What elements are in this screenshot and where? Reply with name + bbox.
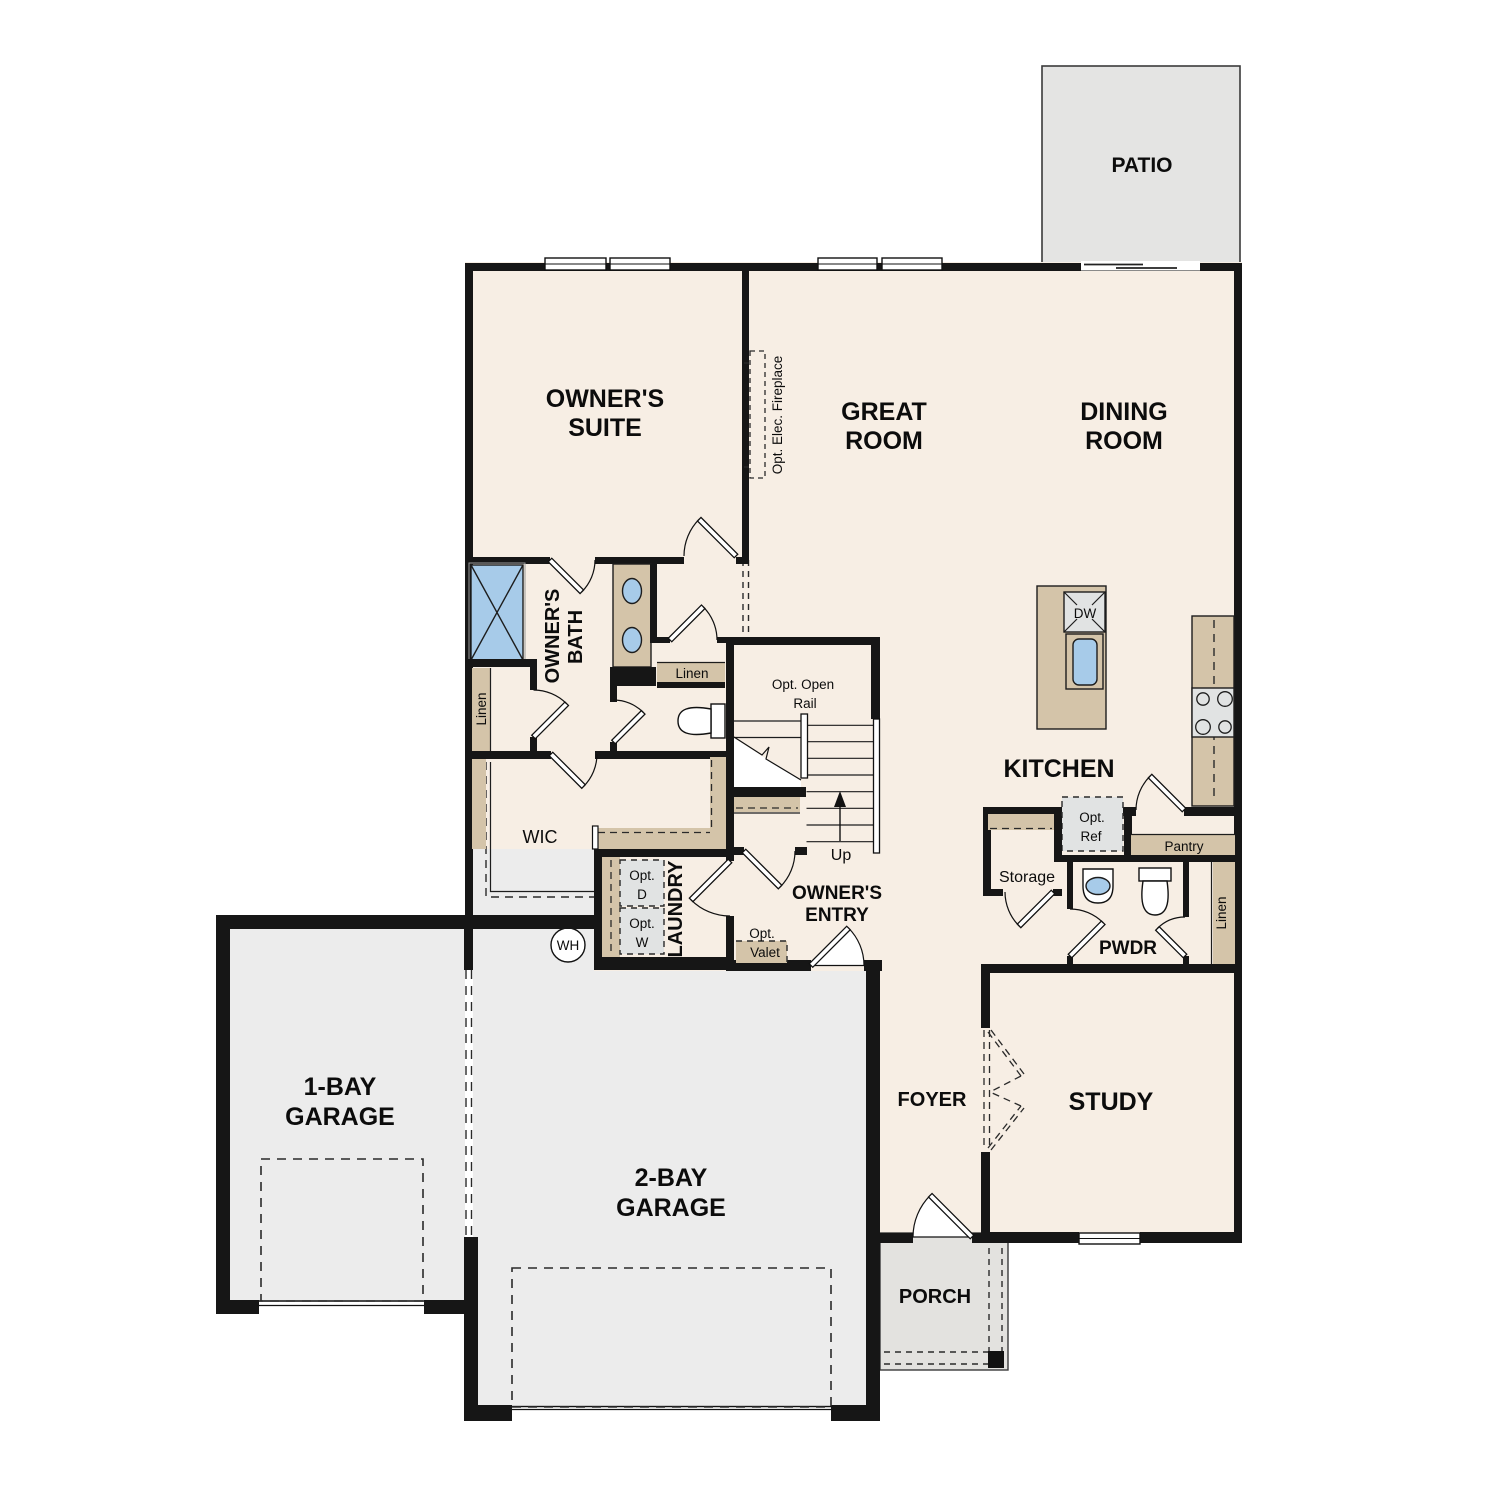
svg-text:Ref: Ref (1080, 829, 1101, 844)
svg-text:Opt. Elec. Fireplace: Opt. Elec. Fireplace (770, 356, 785, 475)
svg-text:WIC: WIC (523, 827, 558, 847)
svg-text:Linen: Linen (1214, 896, 1229, 929)
svg-text:Linen: Linen (675, 666, 708, 681)
svg-text:GARAGE: GARAGE (616, 1194, 726, 1222)
svg-text:Opt.: Opt. (749, 926, 775, 941)
svg-text:D: D (637, 887, 647, 902)
svg-text:BATH: BATH (565, 610, 587, 664)
svg-text:OWNER'S: OWNER'S (542, 589, 564, 684)
svg-text:ROOM: ROOM (1085, 427, 1163, 455)
svg-text:Linen: Linen (474, 692, 489, 725)
svg-text:Opt.: Opt. (629, 916, 655, 931)
svg-text:Up: Up (831, 847, 852, 864)
svg-text:W: W (636, 935, 649, 950)
svg-text:Rail: Rail (793, 696, 816, 711)
svg-text:SUITE: SUITE (568, 414, 642, 442)
svg-text:Valet: Valet (750, 945, 780, 960)
svg-text:DW: DW (1074, 606, 1097, 621)
svg-text:OWNER'S: OWNER'S (546, 385, 664, 413)
svg-text:GREAT: GREAT (841, 398, 927, 426)
svg-text:OWNER'S: OWNER'S (792, 883, 882, 904)
svg-text:1-BAY: 1-BAY (304, 1073, 377, 1101)
svg-text:FOYER: FOYER (898, 1089, 967, 1111)
svg-text:PWDR: PWDR (1099, 938, 1157, 959)
svg-text:KITCHEN: KITCHEN (1003, 755, 1114, 783)
svg-text:Opt. Open: Opt. Open (772, 677, 834, 692)
svg-text:LAUNDRY: LAUNDRY (665, 860, 687, 958)
svg-text:2-BAY: 2-BAY (635, 1164, 708, 1192)
svg-text:Opt.: Opt. (629, 868, 655, 883)
svg-text:Opt.: Opt. (1079, 810, 1105, 825)
svg-text:STUDY: STUDY (1069, 1088, 1154, 1116)
svg-text:ROOM: ROOM (845, 427, 923, 455)
svg-text:Storage: Storage (999, 869, 1055, 886)
svg-text:ENTRY: ENTRY (805, 905, 869, 926)
svg-text:PORCH: PORCH (899, 1286, 971, 1308)
svg-text:DINING: DINING (1080, 398, 1168, 426)
svg-text:Pantry: Pantry (1164, 839, 1203, 854)
svg-text:GARAGE: GARAGE (285, 1103, 395, 1131)
svg-text:WH: WH (557, 938, 580, 953)
svg-text:PATIO: PATIO (1111, 154, 1172, 177)
